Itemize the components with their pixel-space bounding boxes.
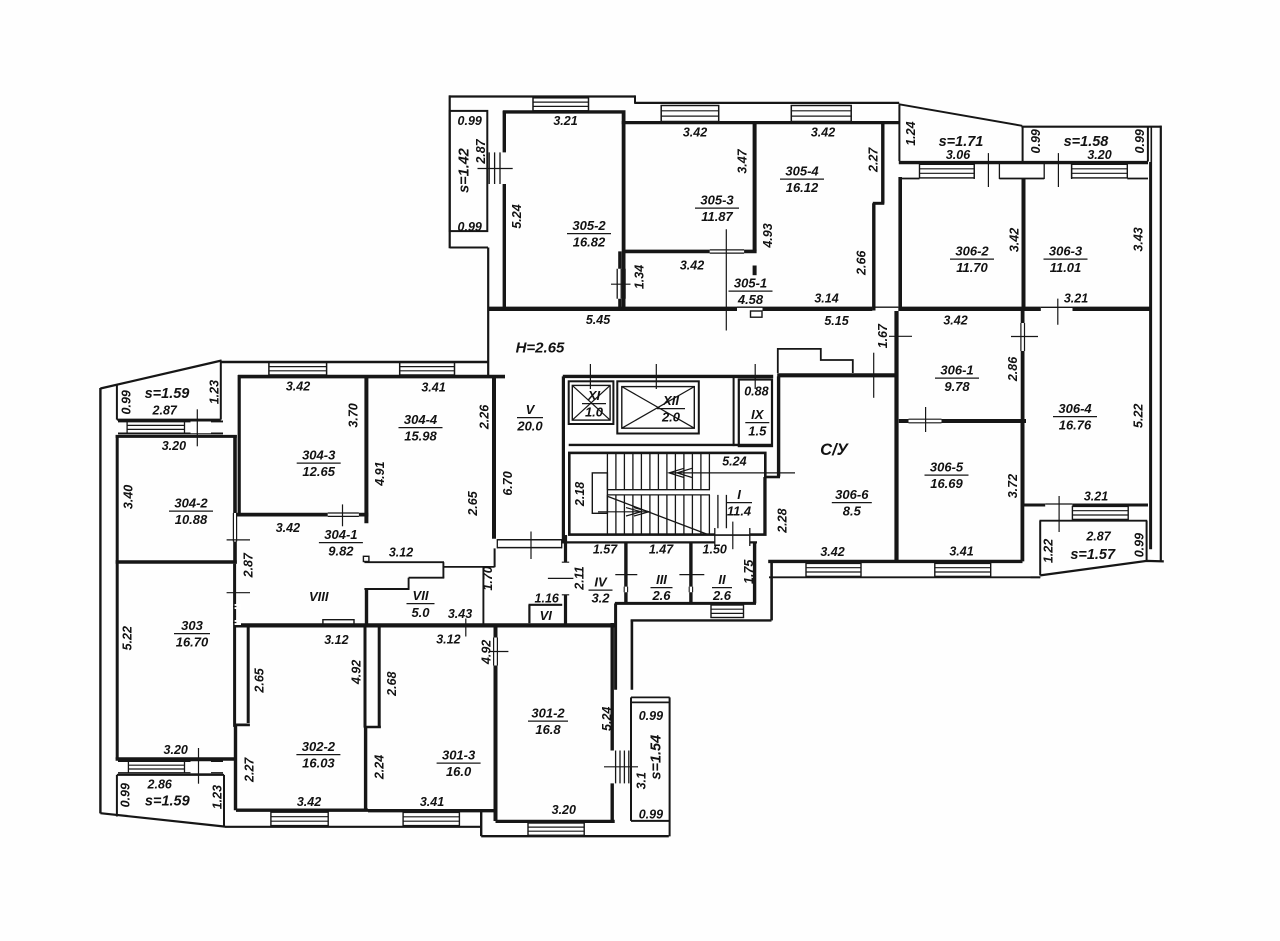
svg-text:306-3: 306-3 xyxy=(1049,244,1083,259)
svg-text:16.70: 16.70 xyxy=(176,635,209,650)
svg-text:3.72: 3.72 xyxy=(1006,474,1020,498)
svg-text:3.41: 3.41 xyxy=(421,381,445,395)
svg-text:2.6: 2.6 xyxy=(651,588,671,603)
svg-text:305-1: 305-1 xyxy=(734,276,767,291)
svg-text:IX: IX xyxy=(751,407,765,422)
svg-text:3.14: 3.14 xyxy=(814,292,838,306)
svg-text:3.42: 3.42 xyxy=(297,795,321,809)
svg-text:15.98: 15.98 xyxy=(404,429,437,444)
svg-text:2.66: 2.66 xyxy=(854,250,868,276)
svg-text:16.12: 16.12 xyxy=(786,180,819,195)
svg-text:1.47: 1.47 xyxy=(649,543,674,557)
svg-text:3.42: 3.42 xyxy=(683,126,707,140)
svg-text:20.0: 20.0 xyxy=(516,419,543,434)
svg-text:3.20: 3.20 xyxy=(164,743,188,757)
svg-text:5.15: 5.15 xyxy=(824,314,849,328)
svg-text:II: II xyxy=(718,572,726,587)
svg-text:2.87: 2.87 xyxy=(241,552,255,578)
svg-text:306-1: 306-1 xyxy=(940,363,973,378)
svg-text:2.11: 2.11 xyxy=(573,566,587,590)
svg-text:1.57: 1.57 xyxy=(593,543,618,557)
svg-text:302-2: 302-2 xyxy=(302,739,336,754)
svg-text:1.75: 1.75 xyxy=(742,559,756,584)
svg-text:4.92: 4.92 xyxy=(480,640,494,665)
svg-text:16.82: 16.82 xyxy=(573,235,606,250)
svg-text:5.22: 5.22 xyxy=(1132,404,1146,428)
svg-text:3.42: 3.42 xyxy=(680,259,704,273)
svg-text:0.99: 0.99 xyxy=(639,709,663,723)
svg-text:III: III xyxy=(656,572,667,587)
svg-text:IV: IV xyxy=(594,575,608,590)
svg-text:3.21: 3.21 xyxy=(553,114,577,128)
svg-text:s=1.59: s=1.59 xyxy=(145,386,190,402)
svg-text:0.99: 0.99 xyxy=(639,808,663,822)
svg-text:12.65: 12.65 xyxy=(302,464,335,479)
svg-text:8.5: 8.5 xyxy=(843,504,862,519)
svg-text:XI: XI xyxy=(587,388,601,403)
svg-text:3.40: 3.40 xyxy=(121,485,135,509)
svg-text:VI: VI xyxy=(540,608,553,623)
svg-text:3.42: 3.42 xyxy=(811,126,835,140)
svg-text:3.42: 3.42 xyxy=(286,380,310,394)
svg-text:0.99: 0.99 xyxy=(458,220,482,234)
svg-text:0.88: 0.88 xyxy=(744,385,768,399)
svg-text:16.8: 16.8 xyxy=(535,722,561,737)
svg-text:306-6: 306-6 xyxy=(835,487,869,502)
svg-text:11.01: 11.01 xyxy=(1050,260,1082,275)
svg-text:2.86: 2.86 xyxy=(1006,356,1020,382)
svg-text:s=1.57: s=1.57 xyxy=(1070,547,1116,563)
svg-text:1.23: 1.23 xyxy=(211,785,225,809)
svg-text:3.21: 3.21 xyxy=(1064,291,1088,305)
svg-text:3.1: 3.1 xyxy=(635,772,649,789)
svg-text:9.82: 9.82 xyxy=(328,544,354,559)
svg-text:3.42: 3.42 xyxy=(276,521,300,535)
svg-text:2.26: 2.26 xyxy=(478,404,492,430)
svg-text:3.70: 3.70 xyxy=(346,403,360,427)
svg-text:s=1.54: s=1.54 xyxy=(649,735,665,780)
svg-text:306-4: 306-4 xyxy=(1058,401,1092,416)
svg-text:5.24: 5.24 xyxy=(510,204,524,228)
svg-text:1.23: 1.23 xyxy=(207,380,221,404)
svg-text:2.87: 2.87 xyxy=(152,404,178,418)
svg-text:0.99: 0.99 xyxy=(1133,129,1147,153)
svg-text:304-1: 304-1 xyxy=(324,527,357,542)
svg-text:304-4: 304-4 xyxy=(404,412,438,427)
svg-text:4.91: 4.91 xyxy=(373,461,387,486)
svg-text:2.0: 2.0 xyxy=(661,410,681,425)
svg-text:16.76: 16.76 xyxy=(1059,418,1092,433)
svg-text:H=2.65: H=2.65 xyxy=(516,340,565,357)
svg-text:3.12: 3.12 xyxy=(436,633,460,647)
svg-text:VII: VII xyxy=(413,588,429,603)
svg-text:3.06: 3.06 xyxy=(946,148,971,162)
svg-text:0.99: 0.99 xyxy=(458,114,482,128)
svg-text:0.99: 0.99 xyxy=(119,390,133,414)
svg-text:3.41: 3.41 xyxy=(420,795,444,809)
svg-text:2.65: 2.65 xyxy=(253,667,267,693)
svg-text:304-3: 304-3 xyxy=(302,448,336,463)
svg-text:5.45: 5.45 xyxy=(586,313,611,327)
svg-text:s=1.42: s=1.42 xyxy=(456,148,472,193)
svg-text:2.68: 2.68 xyxy=(385,671,399,696)
svg-text:3.12: 3.12 xyxy=(389,546,413,560)
svg-text:4.92: 4.92 xyxy=(350,660,364,685)
svg-text:1.0: 1.0 xyxy=(585,405,604,420)
svg-text:306-5: 306-5 xyxy=(930,460,964,475)
svg-text:4.93: 4.93 xyxy=(761,223,775,248)
svg-text:4.58: 4.58 xyxy=(737,292,764,307)
svg-text:2.87: 2.87 xyxy=(1085,530,1111,544)
svg-text:306-2: 306-2 xyxy=(955,244,989,259)
svg-text:9.78: 9.78 xyxy=(944,379,970,394)
svg-text:11.4: 11.4 xyxy=(727,504,752,519)
svg-text:2.87: 2.87 xyxy=(474,138,488,164)
svg-text:10.88: 10.88 xyxy=(175,512,208,527)
svg-text:0.99: 0.99 xyxy=(1029,129,1043,153)
svg-text:2.24: 2.24 xyxy=(372,755,386,780)
svg-text:3.2: 3.2 xyxy=(591,591,610,606)
svg-text:5.0: 5.0 xyxy=(411,605,430,620)
svg-text:304-2: 304-2 xyxy=(174,496,208,511)
svg-text:2.27: 2.27 xyxy=(242,757,256,783)
svg-text:1.16: 1.16 xyxy=(535,592,560,606)
svg-text:305-4: 305-4 xyxy=(785,164,819,179)
svg-text:11.87: 11.87 xyxy=(701,209,733,224)
svg-text:5.24: 5.24 xyxy=(722,455,746,469)
svg-text:1.5: 1.5 xyxy=(748,424,767,439)
svg-text:0.99: 0.99 xyxy=(1132,533,1146,557)
svg-text:1.34: 1.34 xyxy=(632,265,646,289)
svg-text:2.65: 2.65 xyxy=(466,490,480,516)
svg-text:С/У: С/У xyxy=(820,441,850,459)
svg-text:1.70: 1.70 xyxy=(481,566,495,590)
svg-text:16.69: 16.69 xyxy=(930,476,963,491)
svg-text:s=1.59: s=1.59 xyxy=(145,794,190,810)
svg-text:2.6: 2.6 xyxy=(712,588,732,603)
svg-text:2.86: 2.86 xyxy=(147,778,173,792)
svg-text:3.42: 3.42 xyxy=(820,545,844,559)
svg-text:1.24: 1.24 xyxy=(904,121,918,145)
svg-text:5.24: 5.24 xyxy=(600,707,614,731)
svg-text:1.50: 1.50 xyxy=(703,543,727,557)
svg-text:2.18: 2.18 xyxy=(573,482,587,507)
svg-text:3.12: 3.12 xyxy=(324,633,348,647)
svg-text:1.67: 1.67 xyxy=(876,323,890,348)
svg-text:303: 303 xyxy=(181,618,203,633)
svg-text:3.20: 3.20 xyxy=(552,803,576,817)
svg-text:301-3: 301-3 xyxy=(442,748,476,763)
svg-text:16.0: 16.0 xyxy=(446,764,472,779)
svg-text:3.42: 3.42 xyxy=(1008,228,1022,252)
svg-text:3.21: 3.21 xyxy=(1084,490,1108,504)
svg-text:301-2: 301-2 xyxy=(531,706,565,721)
svg-text:305-2: 305-2 xyxy=(572,218,606,233)
svg-text:2.28: 2.28 xyxy=(776,508,790,533)
svg-text:XII: XII xyxy=(662,393,679,408)
svg-text:16.03: 16.03 xyxy=(302,756,335,771)
svg-text:V: V xyxy=(526,402,536,417)
svg-text:11.70: 11.70 xyxy=(956,260,988,275)
svg-text:3.43: 3.43 xyxy=(448,607,472,621)
svg-text:305-3: 305-3 xyxy=(700,193,734,208)
svg-text:I: I xyxy=(737,487,741,502)
svg-text:3.20: 3.20 xyxy=(1087,148,1111,162)
svg-text:1.22: 1.22 xyxy=(1042,539,1056,563)
svg-text:3.41: 3.41 xyxy=(949,545,973,559)
svg-text:0.99: 0.99 xyxy=(119,783,133,807)
svg-text:VIII: VIII xyxy=(309,589,329,604)
svg-text:3.20: 3.20 xyxy=(162,439,186,453)
svg-text:3.47: 3.47 xyxy=(736,148,750,173)
svg-text:3.43: 3.43 xyxy=(1132,227,1146,251)
svg-text:2.27: 2.27 xyxy=(867,147,881,173)
svg-text:5.22: 5.22 xyxy=(121,626,135,650)
svg-text:6.70: 6.70 xyxy=(501,471,515,495)
svg-text:3.42: 3.42 xyxy=(943,314,967,328)
